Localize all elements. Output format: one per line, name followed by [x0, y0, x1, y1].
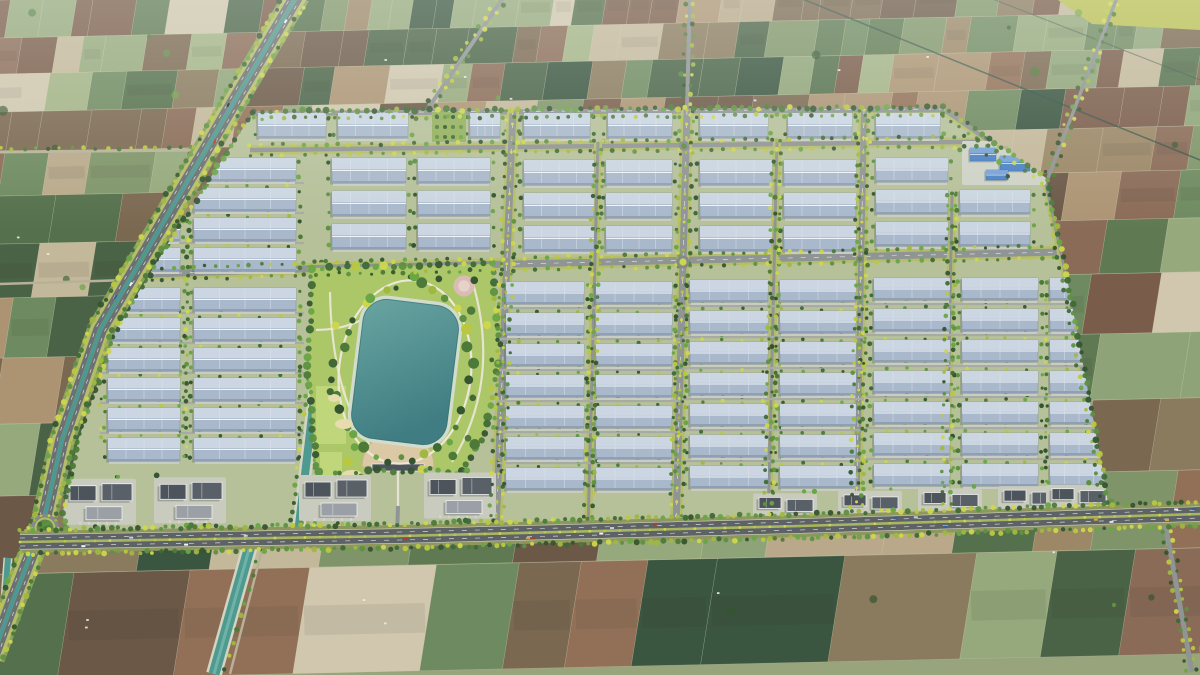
car: [599, 533, 603, 535]
car: [81, 545, 85, 547]
car: [1165, 519, 1169, 521]
car: [1174, 508, 1178, 510]
car: [244, 535, 248, 537]
car: [526, 537, 530, 539]
car: [654, 523, 658, 525]
sand-area: [335, 419, 353, 429]
car: [610, 527, 614, 529]
car: [184, 544, 188, 546]
distance-haze: [0, 0, 1200, 230]
car: [531, 537, 535, 539]
car: [893, 517, 897, 519]
car: [1192, 508, 1196, 510]
car: [129, 537, 133, 539]
car: [1109, 521, 1113, 523]
car: [1094, 519, 1098, 521]
car: [943, 526, 947, 528]
industrial-park-scene: [0, 0, 1200, 675]
roundabout: [856, 255, 864, 263]
industrial-park-aerial-render: [0, 0, 1200, 675]
car: [914, 516, 918, 518]
roundabout: [677, 256, 690, 269]
car: [403, 537, 407, 539]
